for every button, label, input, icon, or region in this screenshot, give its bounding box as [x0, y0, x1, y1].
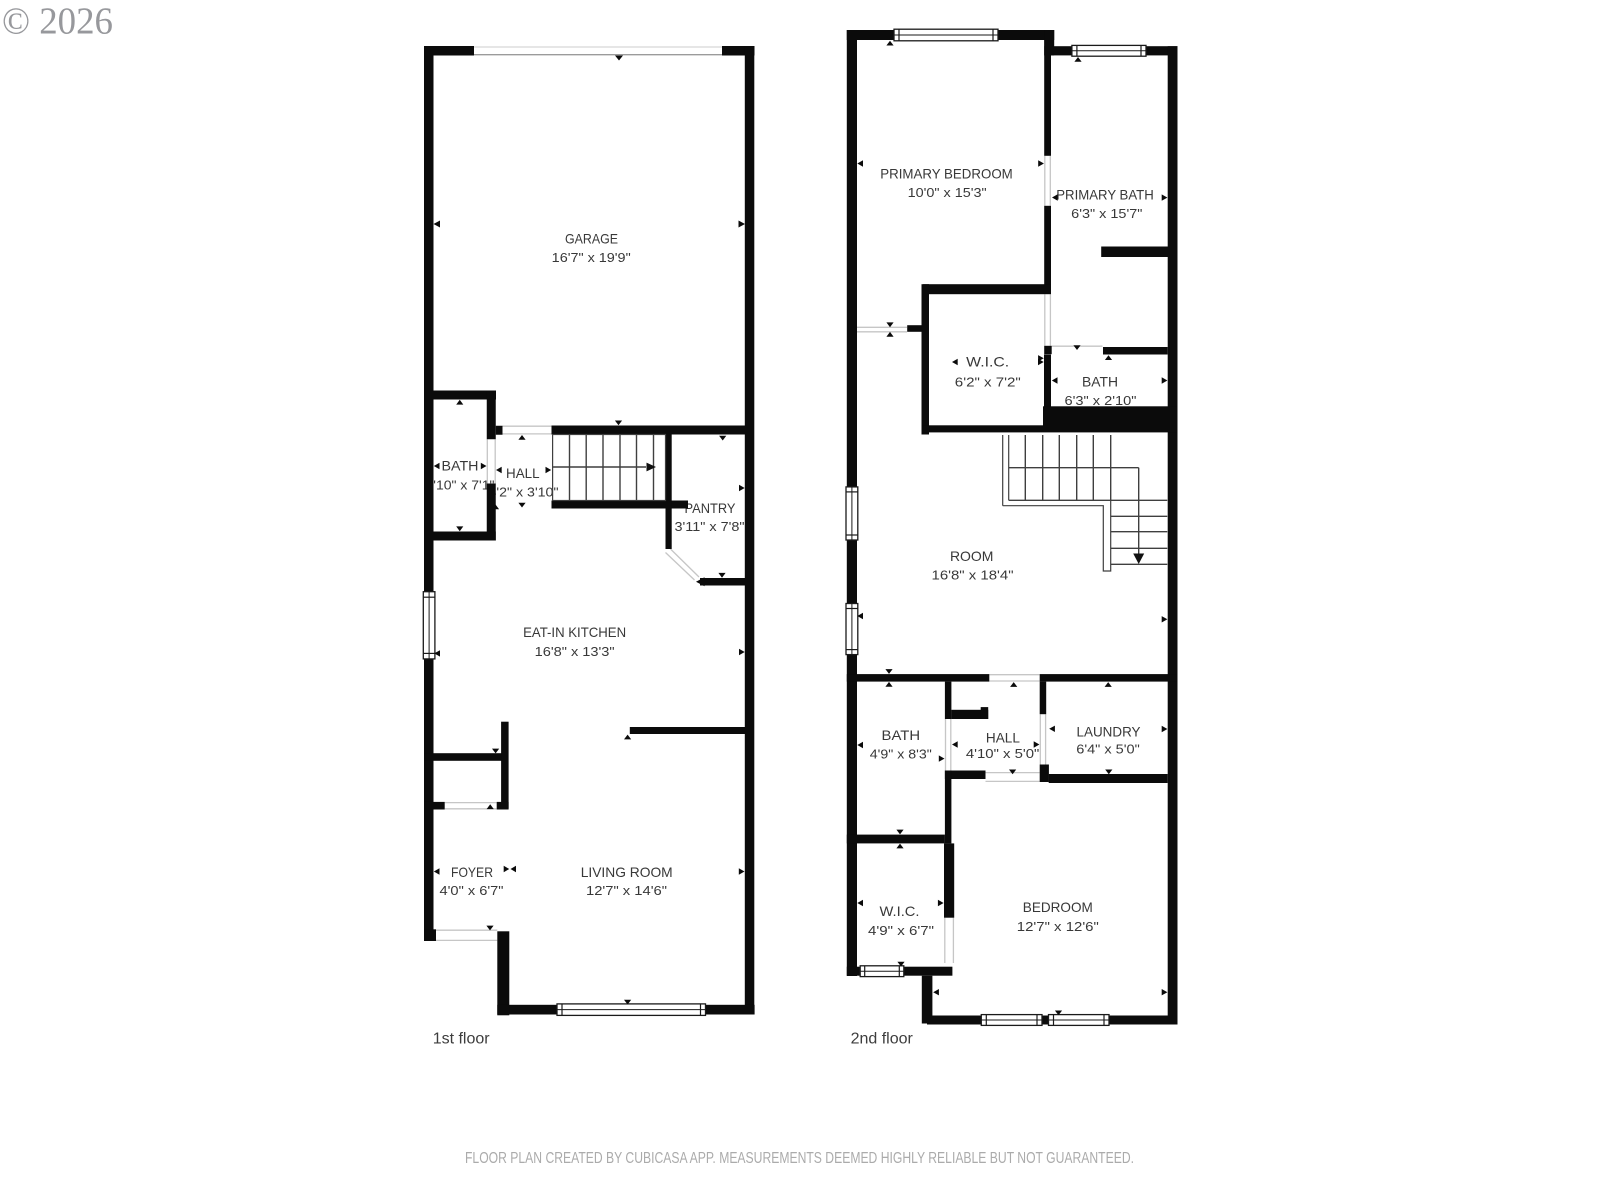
svg-text:HALL: HALL: [986, 730, 1020, 746]
svg-text:LAUNDRY: LAUNDRY: [1077, 724, 1142, 740]
svg-text:6'3" x 2'10": 6'3" x 2'10": [1065, 393, 1137, 408]
svg-text:12'7" x 14'6": 12'7" x 14'6": [586, 883, 667, 898]
svg-text:6'4" x 5'0": 6'4" x 5'0": [1076, 742, 1140, 757]
svg-text:GARAGE: GARAGE: [565, 231, 618, 247]
svg-text:4'9" x 6'7": 4'9" x 6'7": [868, 923, 934, 938]
svg-text:4'9" x 8'3": 4'9" x 8'3": [870, 747, 932, 762]
svg-text:© 2026: © 2026: [2, 1, 113, 43]
svg-text:16'8" x 13'3": 16'8" x 13'3": [535, 644, 615, 659]
svg-text:4'10" x 5'0": 4'10" x 5'0": [966, 746, 1040, 761]
svg-text:W.I.C.: W.I.C.: [966, 354, 1009, 370]
svg-text:1st floor: 1st floor: [433, 1031, 491, 1048]
svg-text:5'10" x 7'1": 5'10" x 7'1": [426, 478, 495, 493]
svg-text:PANTRY: PANTRY: [685, 500, 737, 516]
svg-text:PRIMARY BEDROOM: PRIMARY BEDROOM: [880, 166, 1013, 182]
svg-text:12'7" x 12'6": 12'7" x 12'6": [1017, 919, 1099, 934]
svg-text:BATH: BATH: [442, 458, 479, 474]
svg-text:W.I.C.: W.I.C.: [880, 903, 920, 919]
svg-text:LIVING ROOM: LIVING ROOM: [581, 864, 673, 880]
svg-text:6'2" x 7'2": 6'2" x 7'2": [955, 375, 1021, 390]
svg-text:BATH: BATH: [1082, 374, 1118, 390]
svg-text:FLOOR PLAN CREATED BY CUBICASA: FLOOR PLAN CREATED BY CUBICASA APP. MEAS…: [465, 1150, 1134, 1167]
svg-text:PRIMARY BATH: PRIMARY BATH: [1056, 187, 1154, 203]
svg-text:3'11" x 7'8": 3'11" x 7'8": [675, 519, 745, 534]
svg-text:16'8" x 18'4": 16'8" x 18'4": [932, 568, 1014, 583]
svg-text:EAT-IN KITCHEN: EAT-IN KITCHEN: [523, 624, 626, 640]
svg-text:6'3" x 15'7": 6'3" x 15'7": [1071, 206, 1143, 221]
svg-text:HALL: HALL: [506, 465, 540, 481]
svg-text:10'0" x 15'3": 10'0" x 15'3": [908, 185, 987, 200]
svg-text:4'2" x 3'10": 4'2" x 3'10": [489, 485, 559, 500]
svg-text:ROOM: ROOM: [950, 548, 994, 564]
svg-text:16'7" x 19'9": 16'7" x 19'9": [552, 250, 631, 265]
svg-text:2nd floor: 2nd floor: [851, 1031, 914, 1048]
svg-text:BATH: BATH: [882, 727, 921, 743]
svg-text:BEDROOM: BEDROOM: [1023, 899, 1093, 915]
svg-text:4'0" x 6'7": 4'0" x 6'7": [440, 883, 504, 898]
svg-text:FOYER: FOYER: [451, 864, 493, 880]
